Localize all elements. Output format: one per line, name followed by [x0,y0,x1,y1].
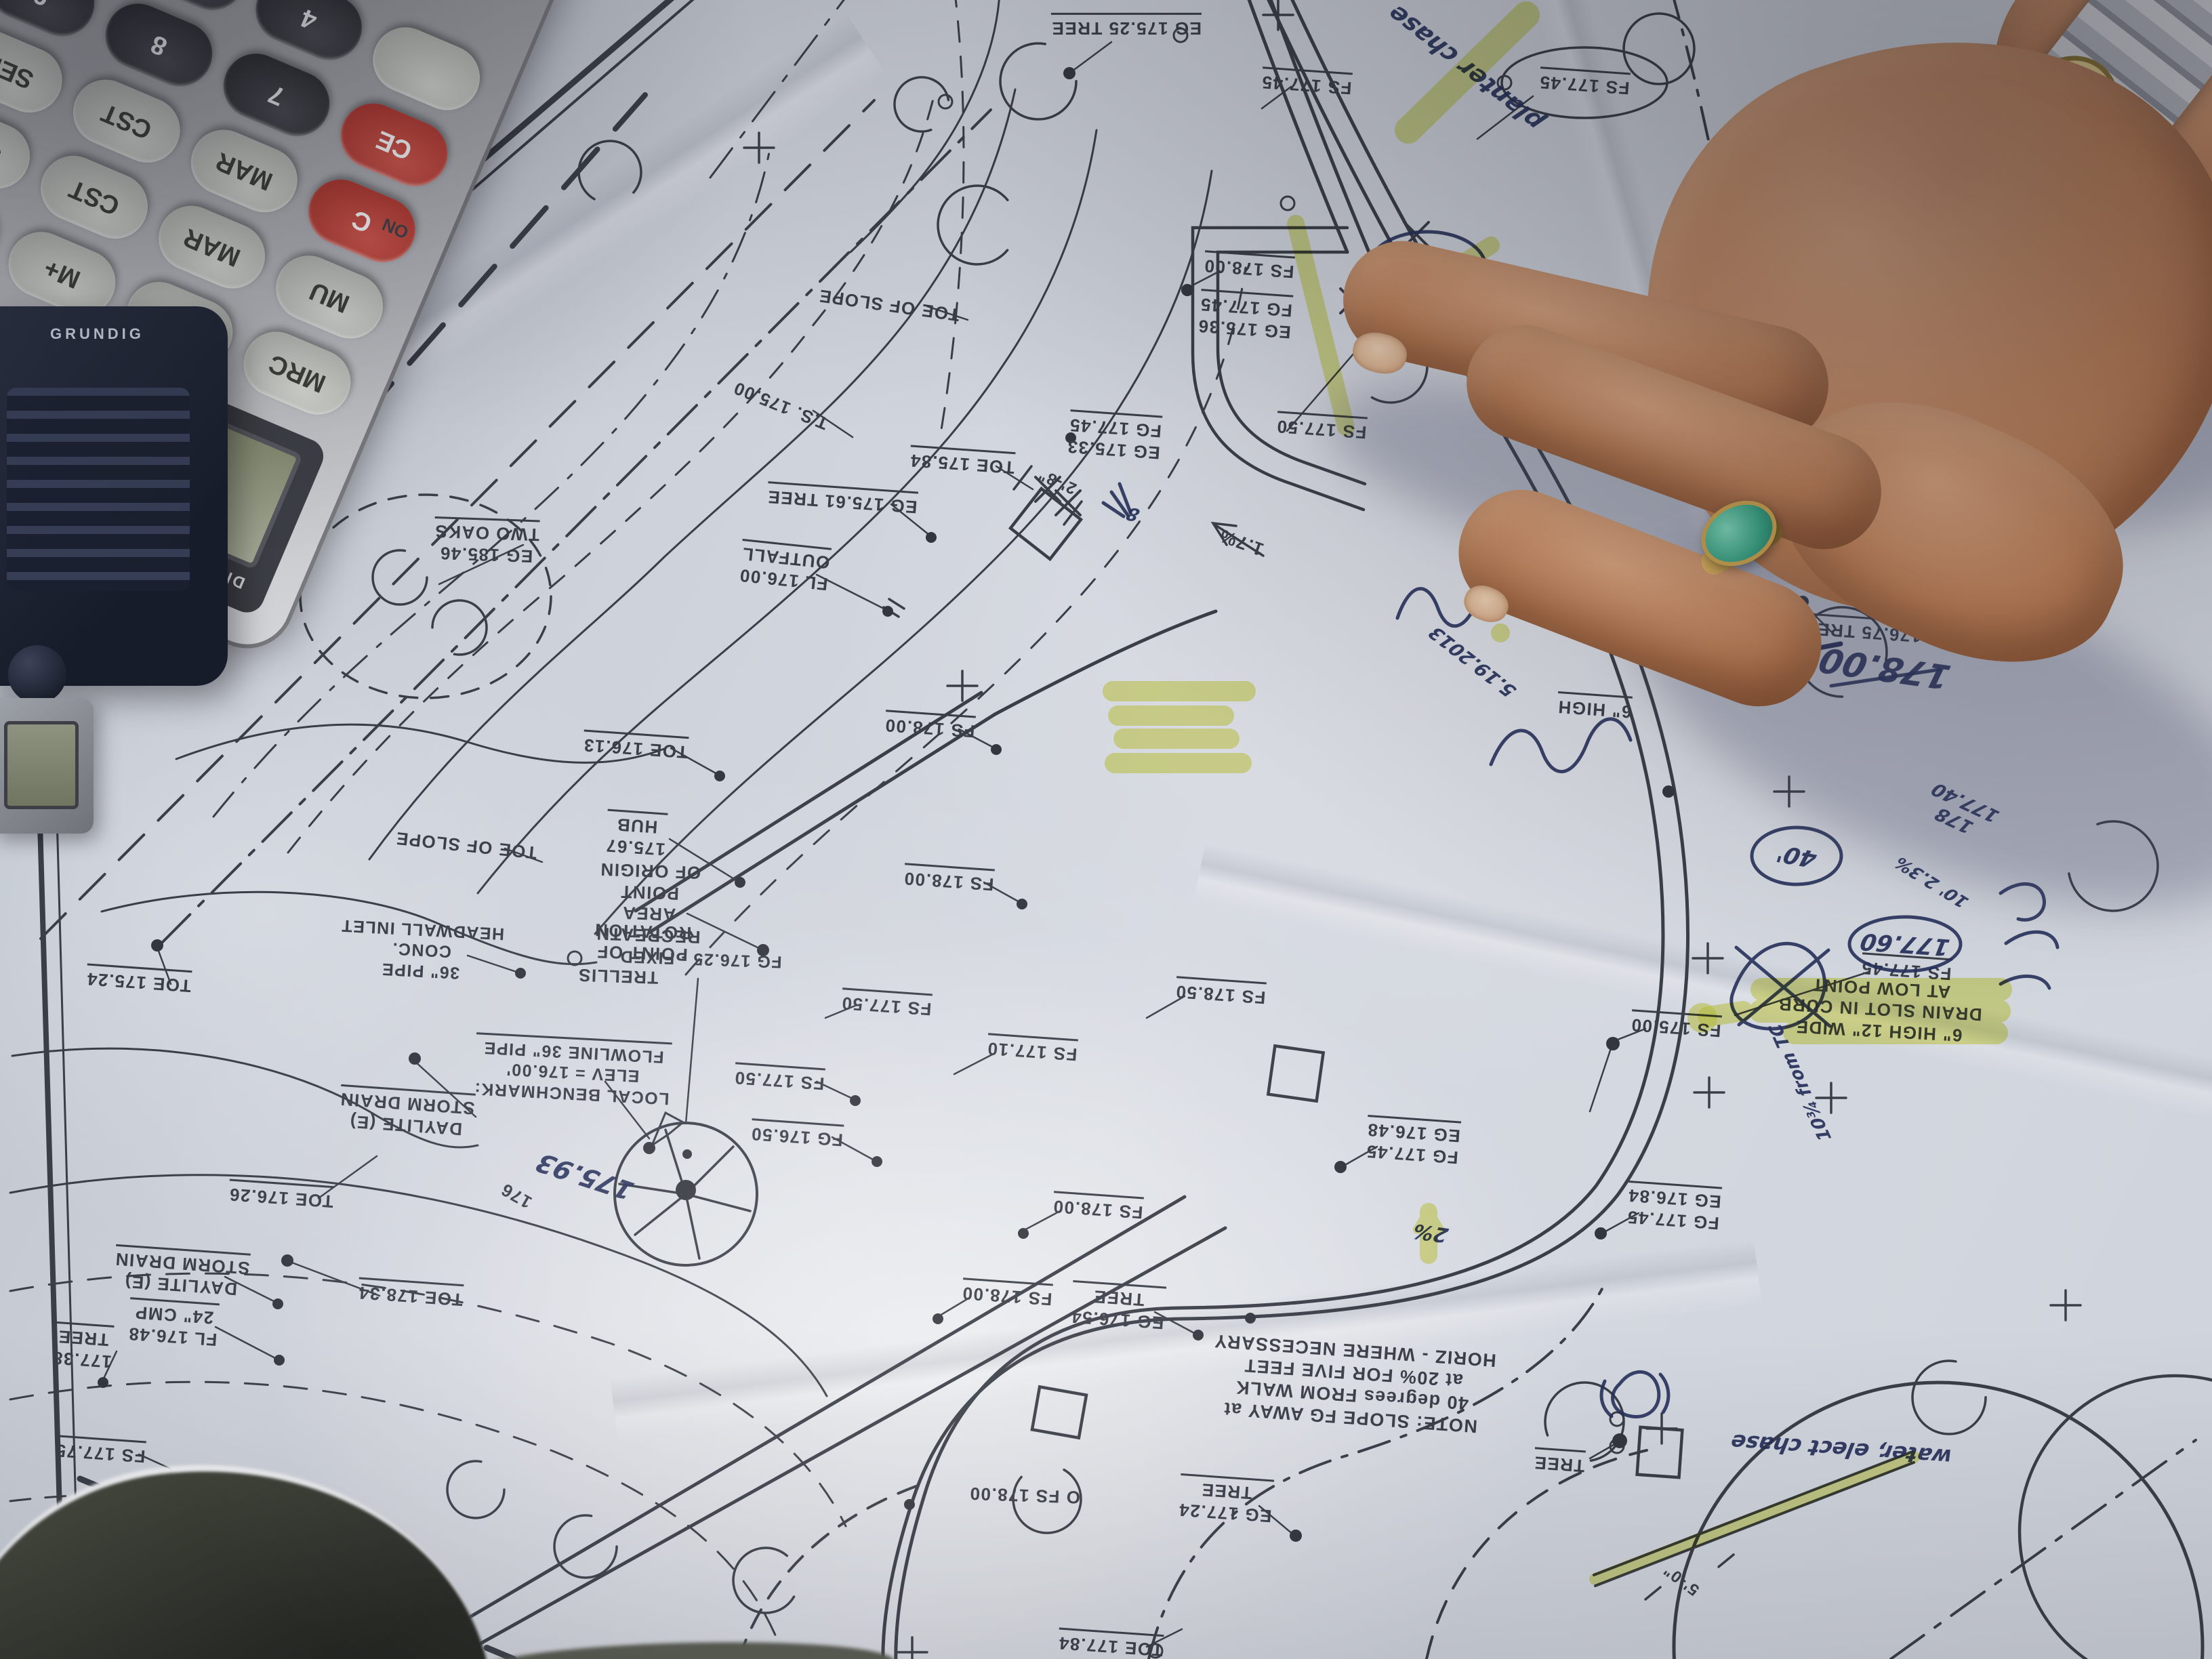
radio-speaker-grille [7,388,190,591]
portable-radio: GRUNDIG [0,306,228,686]
lcd-device-screen [4,721,79,809]
lcd-device [0,698,94,834]
radio-brand: GRUNDIG [50,325,144,343]
photo-of-grading-plan: PLOTTED: 6/21/13 REV DATE: 6/21/13 09- 1… [0,0,2212,1659]
radio-knob [8,645,66,703]
